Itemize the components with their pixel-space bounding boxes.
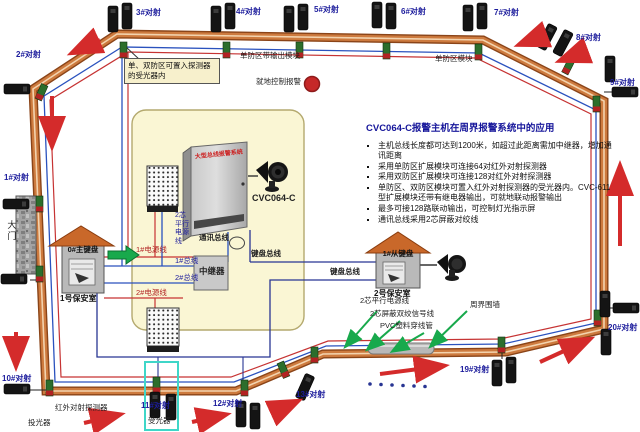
guard-house-2 [366,232,430,288]
label-keyboard-bus-2: 键盘总线 [330,268,360,277]
detector-label-2: 2#对射 [16,50,41,59]
detector-label-5: 5#对射 [314,5,339,14]
label-slave-keypad: 1#从键盘 [378,250,418,259]
label-parallel-power-wire-vertical: 2芯平行电源线 [175,212,190,246]
label-shielded-signal-wire: 2芯屏蔽双绞信号线 [370,310,434,319]
label-pvc-conduit: PVC塑料穿线管 [380,322,433,331]
ir-detector-icon [4,84,30,94]
label-bus-2: 2#总线 [175,274,198,283]
ir-detector-icon [250,403,260,429]
info-bullet: 单防区、双防区模块可置入红外对射探测器的受光器内。CVC-611型扩展模块还带有… [378,183,618,203]
guard-house-1 [49,226,114,293]
info-bullet: 最多可接128路联动输出，可控制灯光指示屏 [378,204,618,214]
zone-module-icon [36,196,43,212]
ir-detector-icon [386,3,396,29]
zone-module-icon [498,337,505,353]
detector-label-8: 8#对射 [576,33,601,42]
perimeter-alarm-diagram: 2#对射 3#对射 4#对射 5#对射 6#对射 7#对射 8#对射 9#对射 … [0,0,640,432]
label-gate: 大门 [6,220,16,242]
ir-detector-icon [463,5,473,31]
info-bullet: 通讯总线采用2芯屏蔽对绞线 [378,215,618,225]
zone-module-icon [383,43,390,59]
zone-module-icon [475,44,482,60]
ir-detector-icon [122,3,132,29]
detector-label-4: 4#对射 [236,7,261,16]
detector-label-6: 6#对射 [401,7,426,16]
detector-label-7: 7#对射 [494,8,519,17]
ir-detector-icon [4,384,30,394]
power-supply-panel-1 [147,166,178,212]
label-guard-room-1: 1号保安室 [60,294,96,303]
ir-detector-icon [492,360,502,386]
zone-module-icon [223,42,230,58]
keypad-icon [383,262,405,284]
label-transmitter: 投光器 [28,419,51,428]
ir-detector-icon [298,4,308,30]
label-comm-bus: 通讯总线 [199,234,229,243]
info-bullet: 采用双防区扩展模块可连接128对红外对射探测器 [378,172,618,182]
info-bullet-list: 主机总线长度都可达到1200米，如超过此距离需加中继器，增加通讯距离 采用单防区… [366,141,618,224]
callout-receiver-note: 单、双防区可置入探测器的受光器内 [124,58,220,84]
siren-icon [437,254,466,281]
ir-detector-icon [477,3,487,29]
detector-label-19: 19#对射 [460,365,489,374]
ir-detector-icon [3,199,29,209]
label-cabinet-model: CVC064-C [252,193,296,203]
label-single-zone-output: 单防区带输出模块 [240,52,300,61]
detector-label-3: 3#对射 [136,8,161,17]
ir-detector-icon [506,357,516,383]
zone-module-icon [36,266,43,282]
zone-module-icon [120,42,127,58]
detector-label-20: 20#对射 [608,323,637,332]
zone-module-icon [311,347,318,363]
local-alarm-icon [305,77,320,92]
ir-detector-icon [601,329,611,355]
ir-detector-icon [612,87,638,97]
info-title: CVC064-C报警主机在周界报警系统中的应用 [366,124,618,135]
label-keyboard-bus-1: 键盘总线 [251,250,281,259]
label-master-keypad: 0#主键盘 [62,246,104,255]
label-receiver: 受光器 [148,417,171,426]
continuation-dots [368,382,427,388]
ir-detector-icon [613,303,639,313]
info-bullet: 采用单防区扩展模块可连接64对红外对射探测器 [378,162,618,172]
ir-detector-icon [1,274,27,284]
label-parallel-power-wire: 2芯平行电源线 [360,297,409,306]
zone-module-icon [593,96,600,112]
ir-detector-icon [372,2,382,28]
label-single-zone-module: 单防区模块 [435,55,473,64]
detector-label-12: 12#对射 [213,399,242,408]
detector-label-10: 10#对射 [2,374,31,383]
zone-module-icon [46,380,53,396]
ir-detector-icon [284,6,294,32]
label-repeater: 中继器 [199,267,225,277]
ir-detector-icon [552,29,573,57]
detector-label-9: 9#对射 [610,78,635,87]
info-bullet: 主机总线长度都可达到1200米，如超过此距离需加中继器，增加通讯距离 [378,141,618,161]
label-local-alarm: 就地控制报警 [256,78,301,87]
label-bus-1: 1#总线 [175,257,198,266]
power-supply-panel-2 [147,308,179,352]
label-ir-detector: 红外对射探测器 [55,404,108,413]
label-power-line-1: 1#电源线 [136,246,167,255]
ir-detector-icon [225,3,235,29]
ir-detector-icon [600,291,610,317]
zone-module-icon [153,377,160,393]
info-block: CVC064-C报警主机在周界报警系统中的应用 主机总线长度都可达到1200米，… [366,124,618,225]
zone-module-icon [241,380,248,396]
detector-label-13: 13#对射 [296,390,325,399]
cabinet-lock-icon [241,182,244,185]
ir-detector-icon [211,6,221,32]
direction-arrows-red [16,35,620,423]
detector-label-11: 11#对射 [141,401,170,410]
detector-label-1: 1#对射 [4,173,29,182]
pvc-pipe [368,343,434,354]
label-power-line-2: 2#电源线 [136,289,167,298]
ir-detector-icon [108,6,118,32]
label-perimeter-wall: 周界围墙 [470,301,500,310]
